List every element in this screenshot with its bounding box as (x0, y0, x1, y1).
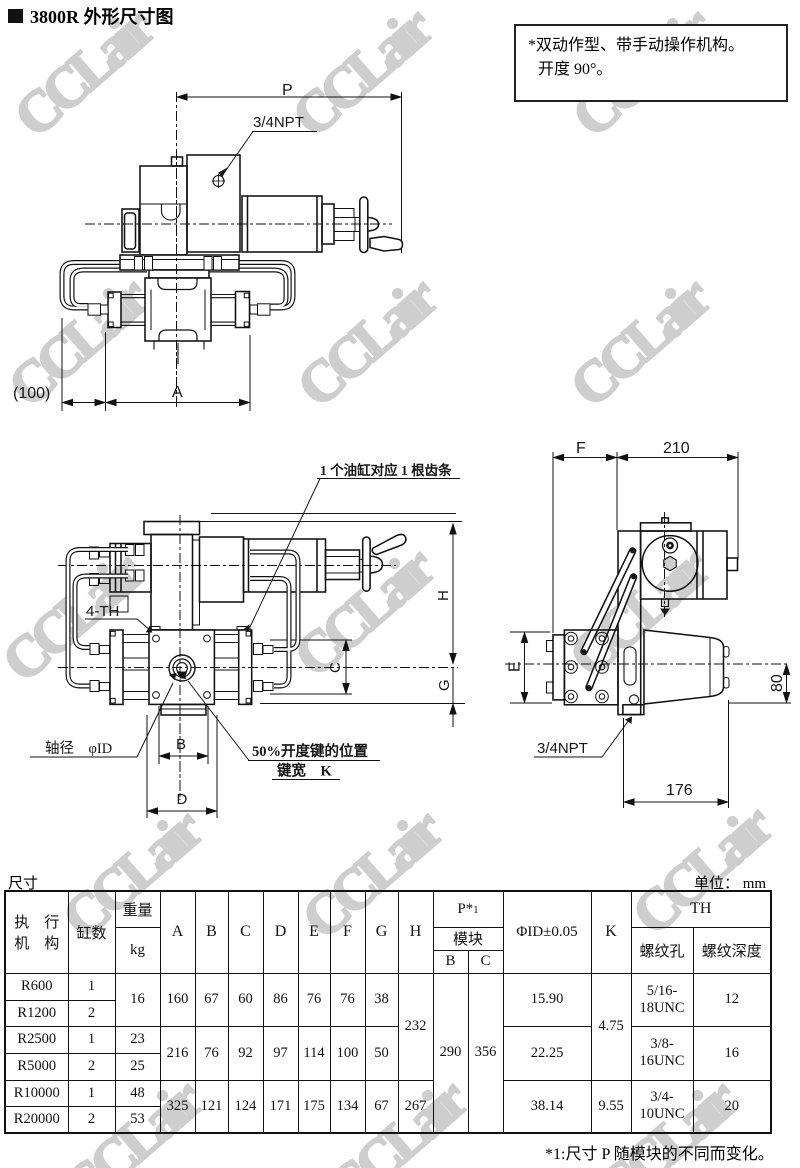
svg-text:H: H (435, 590, 452, 601)
svg-text:3/4NPT: 3/4NPT (537, 740, 588, 757)
svg-text:键宽 K: 键宽 K (276, 762, 332, 780)
svg-text:P: P (282, 82, 293, 99)
svg-text:4-TH: 4-TH (86, 603, 119, 620)
svg-text:轴径 φID: 轴径 φID (45, 740, 112, 757)
svg-text:210: 210 (663, 440, 690, 457)
svg-text:176: 176 (666, 782, 693, 799)
svg-text:G: G (436, 679, 453, 691)
svg-text:E: E (507, 661, 524, 672)
svg-text:50%开度键的位置: 50%开度键的位置 (252, 742, 368, 760)
svg-text:F: F (576, 440, 586, 457)
svg-text:(100): (100) (13, 385, 50, 402)
svg-text:1 个油缸对应 1 根齿条: 1 个油缸对应 1 根齿条 (320, 462, 452, 478)
svg-text:3/4NPT: 3/4NPT (253, 114, 304, 131)
svg-text:80: 80 (769, 674, 786, 692)
svg-text:C: C (327, 662, 344, 673)
svg-text:B: B (176, 736, 186, 753)
svg-text:A: A (172, 384, 183, 401)
svg-text:D: D (177, 791, 188, 808)
